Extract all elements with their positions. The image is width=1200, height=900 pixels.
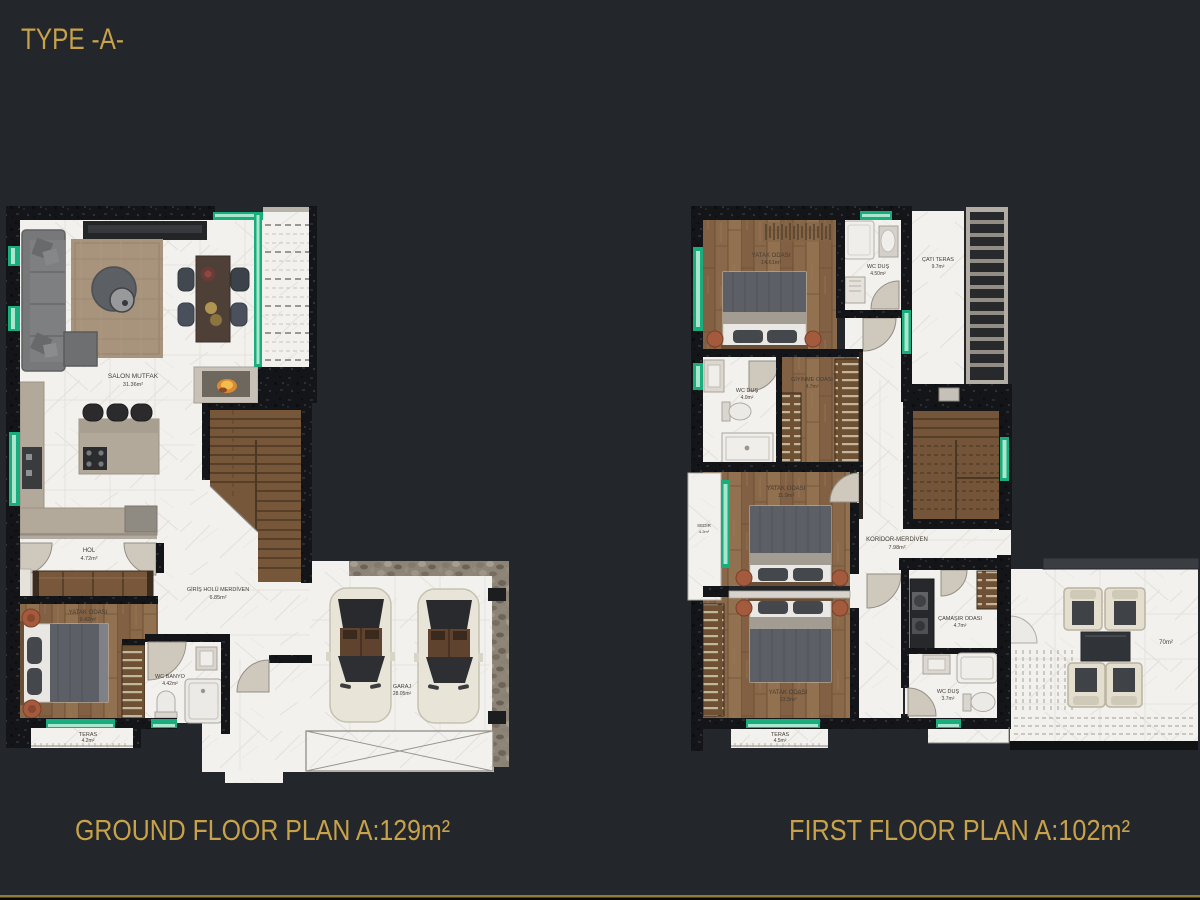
svg-text:4.7m²: 4.7m² bbox=[954, 623, 967, 629]
svg-text:YATAK ODASI: YATAK ODASI bbox=[69, 610, 108, 616]
svg-text:ÇATI TERAS: ÇATI TERAS bbox=[922, 257, 954, 263]
svg-text:9.7m²: 9.7m² bbox=[932, 264, 945, 270]
svg-text:3.7m²: 3.7m² bbox=[942, 696, 955, 702]
svg-text:SALON MUTFAK: SALON MUTFAK bbox=[108, 373, 159, 380]
svg-text:4.2m²: 4.2m² bbox=[82, 738, 95, 744]
svg-text:28.05m²: 28.05m² bbox=[393, 691, 412, 697]
svg-text:4.42m²: 4.42m² bbox=[162, 681, 178, 687]
svg-text:4.0m²: 4.0m² bbox=[741, 395, 754, 401]
svg-text:4.5m²: 4.5m² bbox=[774, 738, 787, 744]
svg-text:4.50m²: 4.50m² bbox=[870, 271, 886, 277]
svg-text:WC DUŞ: WC DUŞ bbox=[867, 264, 890, 270]
svg-text:GROUND FLOOR PLAN A:129m²: GROUND FLOOR PLAN A:129m² bbox=[75, 815, 450, 847]
svg-text:GARAJ: GARAJ bbox=[393, 684, 412, 690]
svg-text:HOL: HOL bbox=[83, 548, 96, 554]
svg-text:FIRST FLOOR PLAN A:102m²: FIRST FLOOR PLAN A:102m² bbox=[789, 815, 1130, 847]
svg-text:WC DUŞ: WC DUŞ bbox=[937, 689, 960, 695]
svg-text:14.61m²: 14.61m² bbox=[761, 260, 781, 266]
svg-text:KORİDOR-MERDİVEN: KORİDOR-MERDİVEN bbox=[866, 536, 928, 543]
svg-text:4.72m²: 4.72m² bbox=[80, 556, 97, 562]
svg-text:70m²: 70m² bbox=[1159, 640, 1173, 646]
svg-text:7.98m²: 7.98m² bbox=[888, 545, 905, 551]
svg-text:4.7m²: 4.7m² bbox=[806, 384, 819, 390]
svg-text:YATAK ODASI: YATAK ODASI bbox=[767, 486, 806, 492]
svg-text:YATAK ODASI: YATAK ODASI bbox=[752, 253, 791, 259]
svg-text:YATAK ODASI: YATAK ODASI bbox=[769, 690, 808, 696]
svg-text:31.36m²: 31.36m² bbox=[123, 382, 143, 388]
svg-text:GİRİŞ HOLÜ MERDİVEN: GİRİŞ HOLÜ MERDİVEN bbox=[187, 586, 249, 593]
svg-text:ÇAMAŞIR ODASI: ÇAMAŞIR ODASI bbox=[938, 616, 982, 622]
svg-text:4.2m²: 4.2m² bbox=[699, 529, 710, 534]
svg-text:13.5m²: 13.5m² bbox=[779, 697, 796, 703]
svg-text:9.42m²: 9.42m² bbox=[79, 617, 96, 623]
svg-text:WC BANYO: WC BANYO bbox=[155, 674, 186, 680]
svg-text:6.85m²: 6.85m² bbox=[209, 595, 226, 601]
svg-text:11.9m²: 11.9m² bbox=[778, 493, 795, 499]
svg-text:TYPE -A-: TYPE -A- bbox=[21, 23, 124, 56]
svg-text:WC DUŞ: WC DUŞ bbox=[736, 388, 759, 394]
svg-text:SEDİR: SEDİR bbox=[697, 522, 712, 528]
svg-text:GİYİNME ODASI: GİYİNME ODASI bbox=[791, 376, 833, 383]
